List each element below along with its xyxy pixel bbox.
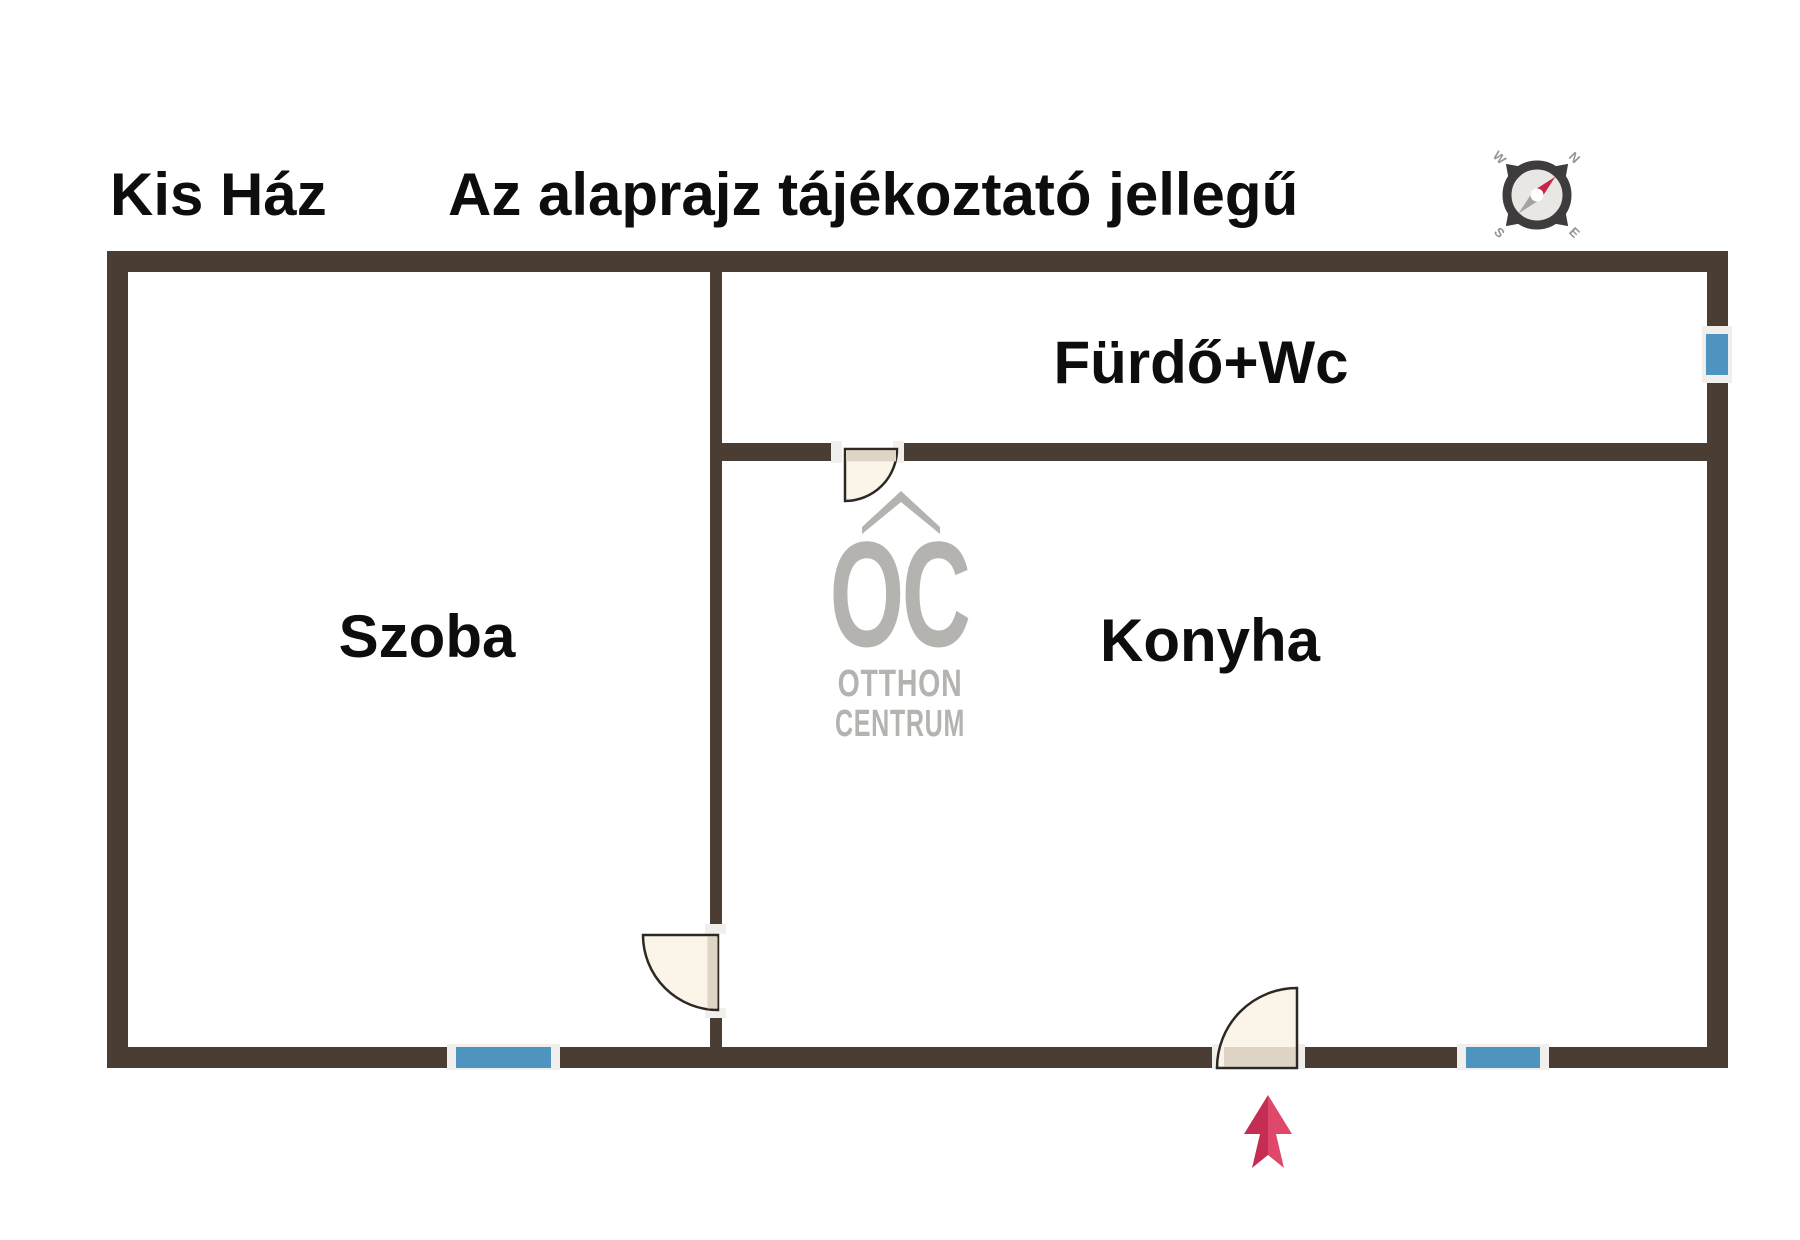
window-pane <box>1706 334 1728 375</box>
room-label-konyha: Konyha <box>1100 608 1320 674</box>
window-right-wall <box>1702 326 1732 383</box>
compass-icon: N E S W <box>1472 130 1602 260</box>
disclaimer-text: Az alaprajz tájékoztató jellegű <box>448 162 1298 228</box>
room-label-szoba: Szoba <box>339 604 516 670</box>
door-leaf <box>1224 1047 1296 1067</box>
watermark-monogram: OC <box>830 538 969 650</box>
interior-wall-horizontal-left <box>722 443 833 461</box>
door-swing <box>643 935 718 1010</box>
window-bottom-right <box>1457 1044 1549 1070</box>
interior-wall-horizontal-right <box>903 443 1707 461</box>
compass-label-e: E <box>1566 224 1583 241</box>
window-pane <box>456 1047 551 1068</box>
door-room <box>635 925 730 1020</box>
window-bottom-left <box>447 1044 560 1070</box>
room-label-furdo-wc: Fürdő+Wc <box>1054 330 1349 396</box>
compass-label-n: N <box>1566 149 1583 166</box>
entrance-arrow-shape <box>1244 1095 1292 1168</box>
door-entrance <box>1212 980 1307 1075</box>
compass-label-s: S <box>1491 224 1508 241</box>
interior-wall-vertical-upper <box>710 272 722 927</box>
entrance-arrow-icon <box>1240 1092 1296 1172</box>
watermark-line1: OTTHON <box>838 664 963 704</box>
window-pane <box>1466 1047 1540 1068</box>
floor-plan-page: { "header": { "title": "Kis Ház", "discl… <box>0 0 1800 1240</box>
interior-wall-vertical-lower <box>710 1016 722 1047</box>
door-leaf <box>846 450 896 461</box>
watermark-line2: CENTRUM <box>835 704 965 744</box>
page-title: Kis Ház <box>110 162 327 228</box>
door-leaf <box>708 937 718 1009</box>
